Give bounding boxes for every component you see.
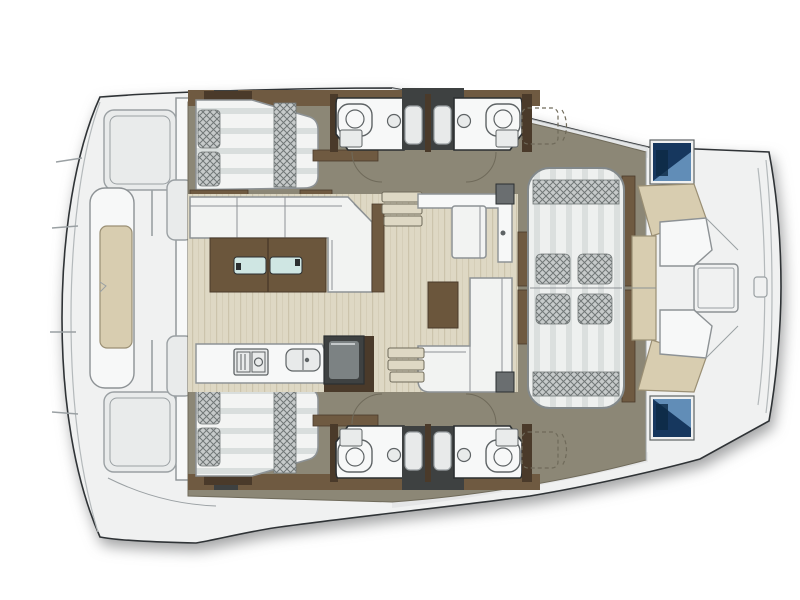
port-berth-runner	[274, 103, 296, 187]
salon-bench-seat	[452, 206, 486, 258]
starboard-head-washbasin-top	[458, 115, 471, 128]
washbasin	[388, 449, 401, 462]
starboard-berth-pillow-1	[198, 428, 220, 466]
port-shower-tray	[405, 106, 422, 144]
foredeck-hatch	[694, 264, 738, 312]
stern-deck-panel-starboard	[104, 392, 176, 472]
door-post-bottom	[496, 372, 514, 392]
starboard-berth-pillow-2	[198, 390, 220, 424]
lounge-bolster-bottom	[533, 372, 619, 396]
lounge-bolster-top	[533, 180, 619, 204]
catamaran-floor-plan	[0, 0, 800, 600]
companionway-stairs-port	[382, 192, 422, 226]
washbasin	[458, 449, 471, 462]
head-divider-top	[425, 94, 431, 152]
port-head-washbasin	[388, 115, 401, 128]
port-berth-pillow-2	[198, 152, 220, 186]
floor-plan-canvas	[0, 0, 800, 600]
port-berth-pillow-1	[198, 110, 220, 148]
transom-lounger	[90, 188, 134, 388]
salon-dining-table	[210, 238, 326, 292]
salon-side-table	[428, 282, 458, 328]
stern-deck-panel-port	[104, 110, 176, 190]
door-hinge-dot	[501, 231, 506, 236]
galley-stove	[234, 349, 268, 375]
forward-cockpit	[518, 168, 635, 408]
door-post-top	[496, 184, 514, 204]
lounge-cushion-1	[536, 254, 570, 284]
bow-rim-cleat	[754, 277, 767, 297]
companionway-stairs-starboard	[388, 348, 424, 382]
starboard-shower-tray-top	[434, 106, 451, 144]
galley	[196, 336, 374, 392]
starboard-head-wall-top	[522, 94, 532, 152]
galley-sink	[286, 349, 320, 371]
port-wardrobe	[313, 150, 378, 161]
forward-window-port	[650, 140, 694, 184]
lounge-cushion-3	[536, 294, 570, 324]
forward-window-starboard	[650, 396, 694, 440]
galley-cooler	[324, 336, 374, 392]
head-divider-bottom	[425, 424, 431, 482]
starboard-wardrobe	[313, 415, 378, 426]
starboard-berth-runner	[274, 389, 296, 473]
salon-port-sofa-side-panel	[372, 204, 384, 292]
lounge-cushion-4	[578, 294, 612, 324]
lounge-cushion-2	[578, 254, 612, 284]
